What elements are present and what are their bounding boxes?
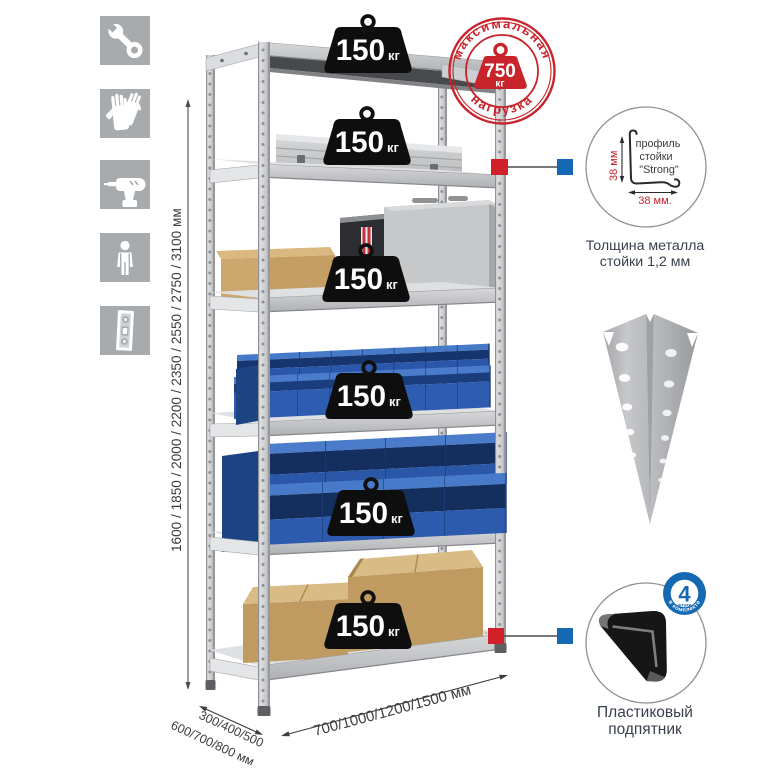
svg-text:Пластиковый: Пластиковый — [597, 704, 693, 721]
svg-text:кг: кг — [389, 394, 402, 409]
svg-text:150: 150 — [335, 126, 384, 159]
svg-text:подпятник: подпятник — [608, 721, 682, 738]
svg-text:38 мм: 38 мм — [608, 151, 620, 181]
svg-text:стойки: стойки — [639, 151, 672, 163]
svg-text:кг: кг — [387, 140, 400, 155]
svg-text:38 мм.: 38 мм. — [638, 195, 671, 207]
svg-text:150: 150 — [339, 497, 388, 530]
svg-text:стойки 1,2 мм: стойки 1,2 мм — [600, 254, 691, 270]
svg-text:кг: кг — [495, 79, 504, 90]
svg-text:1600 / 1850 / 2000 / 2200 / 23: 1600 / 1850 / 2000 / 2200 / 2350 / 2550 … — [169, 208, 184, 552]
svg-text:профиль: профиль — [636, 138, 681, 150]
svg-text:кг: кг — [386, 277, 399, 292]
svg-text:150: 150 — [334, 263, 383, 296]
svg-text:150: 150 — [336, 34, 385, 67]
svg-text:150: 150 — [336, 610, 385, 643]
svg-text:"Strong": "Strong" — [639, 164, 679, 176]
svg-text:кг: кг — [391, 511, 404, 526]
svg-text:150: 150 — [337, 380, 386, 413]
svg-text:кг: кг — [388, 48, 401, 63]
svg-text:кг: кг — [388, 624, 401, 639]
svg-text:Толщина металла: Толщина металла — [586, 238, 705, 254]
